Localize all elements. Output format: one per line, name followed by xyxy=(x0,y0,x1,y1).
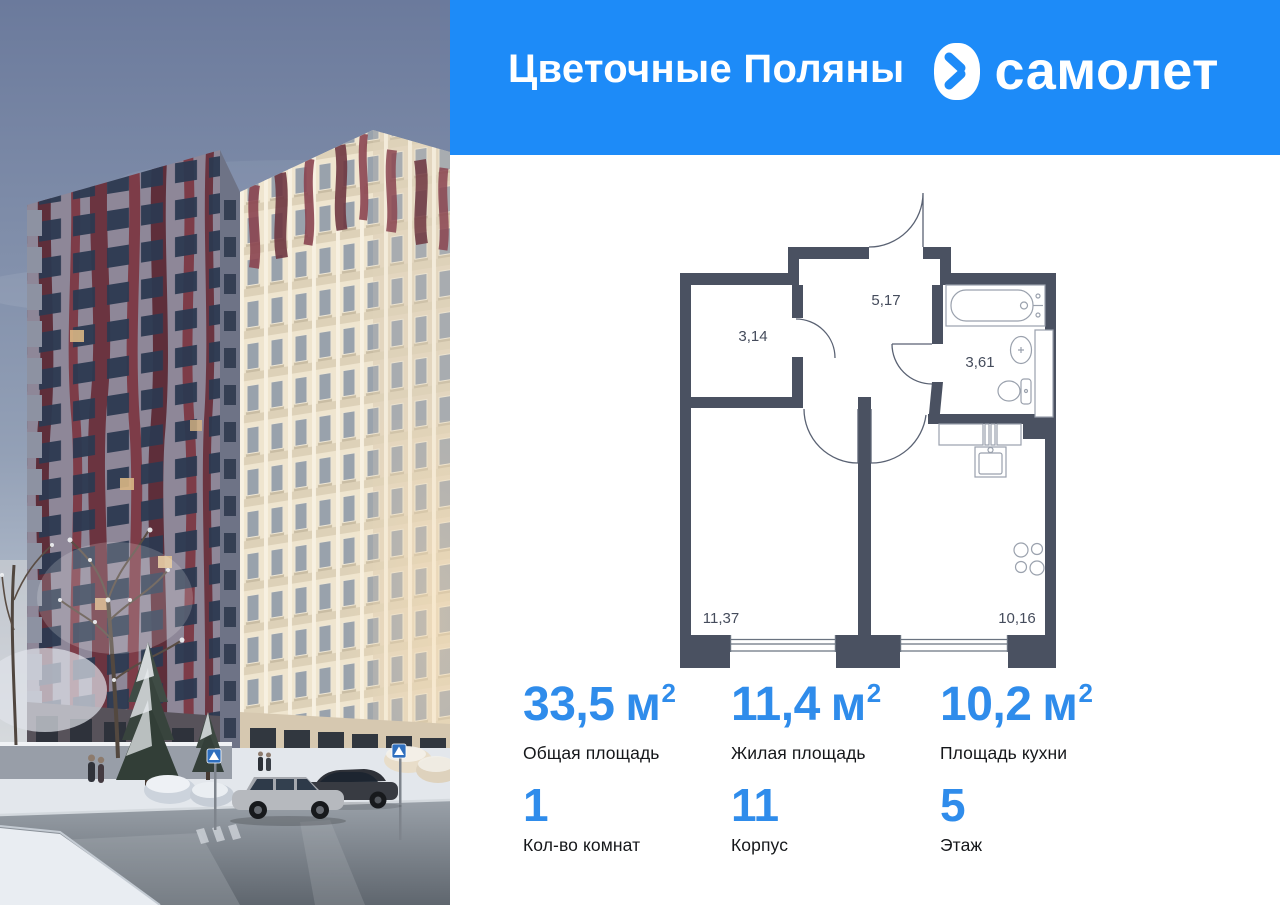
stat-building-number-value: 11 xyxy=(731,781,788,829)
stat-total-area-label: Общая площадь xyxy=(523,743,674,764)
plan-shaft xyxy=(1035,330,1053,417)
stat-building-number: 11 Корпус xyxy=(731,781,788,856)
stat-living-area-label: Жилая площадь xyxy=(731,743,880,764)
stat-floor-value: 5 xyxy=(940,781,982,829)
road xyxy=(0,800,450,905)
room-label-bathroom: 3,61 xyxy=(965,354,994,371)
project-title: Цветочные Поляны xyxy=(508,47,904,92)
room-label-wardrobe: 3,14 xyxy=(738,328,767,345)
floor-plan: 5,17 3,14 3,61 11,37 10,16 xyxy=(680,183,1058,669)
brand-header: Цветочные Поляны самолет xyxy=(450,0,1280,155)
stat-building-number-label: Корпус xyxy=(731,835,788,856)
room-label-kitchen: 10,16 xyxy=(998,610,1036,627)
stat-rooms-count-label: Кол-во комнат xyxy=(523,835,640,856)
stat-total-area: 33,5м2 Общая площадь xyxy=(523,679,674,764)
project-photo xyxy=(0,0,450,905)
room-label-hallway: 5,17 xyxy=(871,292,900,309)
room-label-living-room: 11,37 xyxy=(703,610,739,627)
listing-card: Цветочные Поляны самолет xyxy=(0,0,1280,905)
samolet-wordmark: самолет xyxy=(995,41,1219,101)
stat-floor-label: Этаж xyxy=(940,835,982,856)
stat-kitchen-area: 10,2м2 Площадь кухни xyxy=(940,679,1091,764)
stat-living-area: 11,4м2 Жилая площадь xyxy=(731,679,880,764)
samolet-logo: самолет xyxy=(934,40,1219,102)
stat-floor: 5 Этаж xyxy=(940,781,982,856)
stat-kitchen-area-value: 10,2м2 xyxy=(940,679,1091,737)
listing-panel: Цветочные Поляны самолет xyxy=(450,0,1280,905)
stat-rooms-count: 1 Кол-во комнат xyxy=(523,781,640,856)
stat-living-area-value: 11,4м2 xyxy=(731,679,880,737)
stat-kitchen-area-label: Площадь кухни xyxy=(940,743,1091,764)
samolet-logo-icon xyxy=(934,43,980,100)
stat-rooms-count-value: 1 xyxy=(523,781,640,829)
building-cream-tower xyxy=(240,120,450,810)
stat-total-area-value: 33,5м2 xyxy=(523,679,674,737)
